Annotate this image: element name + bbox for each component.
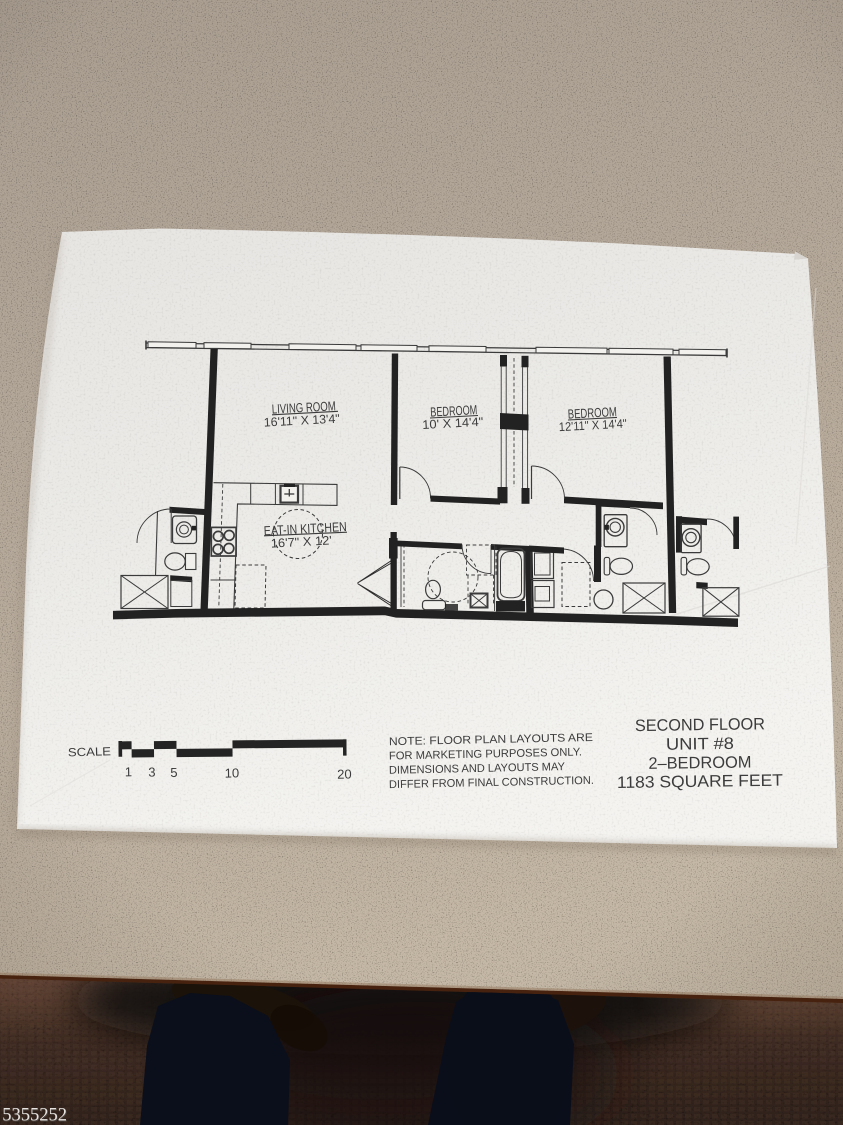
svg-text:20: 20 (337, 766, 352, 781)
svg-text:1: 1 (125, 764, 132, 779)
svg-text:SECOND FLOOR: SECOND FLOOR (635, 714, 765, 735)
svg-text:1183 SQUARE FEET: 1183 SQUARE FEET (617, 771, 783, 792)
svg-text:10: 10 (225, 765, 240, 780)
svg-text:SCALE: SCALE (68, 744, 111, 759)
svg-text:2–BEDROOM: 2–BEDROOM (648, 752, 751, 772)
svg-text:UNIT #8: UNIT #8 (666, 734, 734, 754)
svg-text:3: 3 (148, 765, 155, 780)
svg-text:5355252: 5355252 (2, 1106, 67, 1125)
svg-text:5: 5 (170, 765, 177, 780)
